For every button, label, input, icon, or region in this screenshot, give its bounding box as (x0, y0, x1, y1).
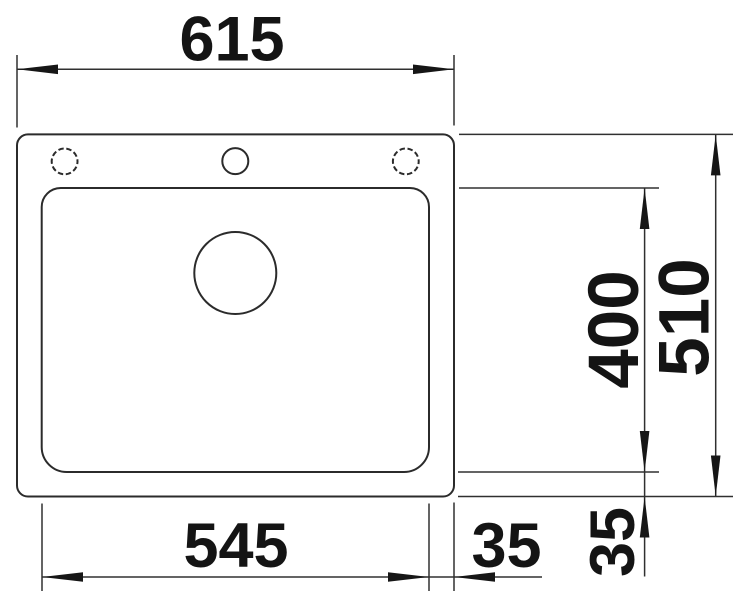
svg-text:35: 35 (471, 511, 541, 581)
svg-text:35: 35 (578, 507, 648, 577)
svg-text:545: 545 (183, 511, 288, 581)
svg-text:615: 615 (179, 5, 284, 75)
svg-text:510: 510 (646, 258, 725, 376)
svg-text:400: 400 (575, 270, 654, 388)
